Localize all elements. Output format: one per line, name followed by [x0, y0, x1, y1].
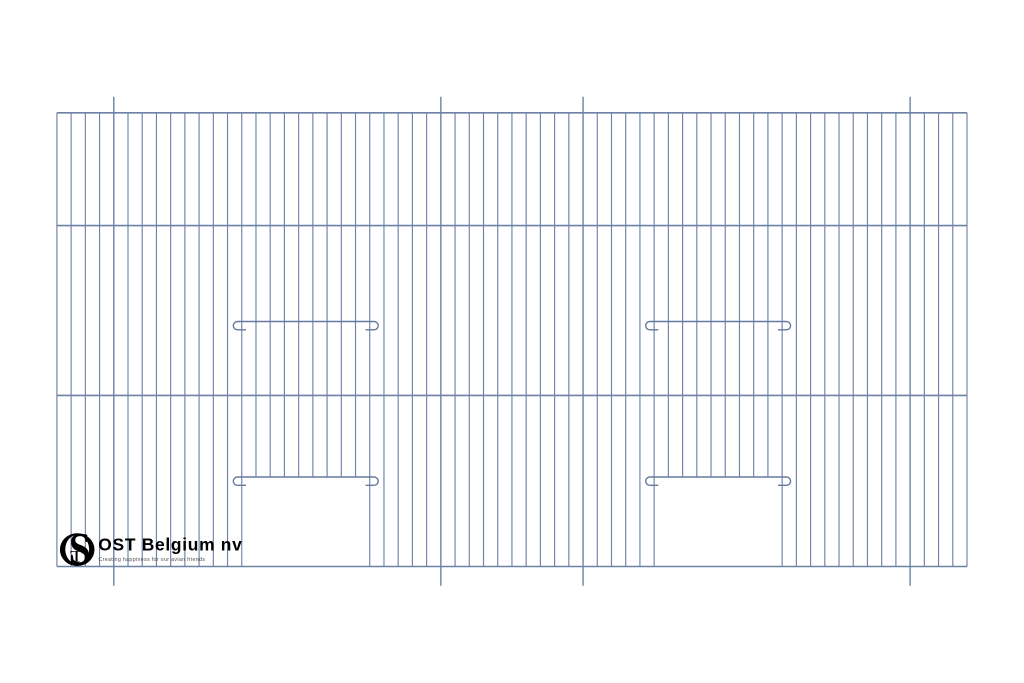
svg-text:S: S [69, 524, 91, 575]
svg-text:OST Belgium nv: OST Belgium nv [98, 534, 242, 554]
svg-text:Creating happiness for our avi: Creating happiness for our avian friends [99, 557, 206, 563]
